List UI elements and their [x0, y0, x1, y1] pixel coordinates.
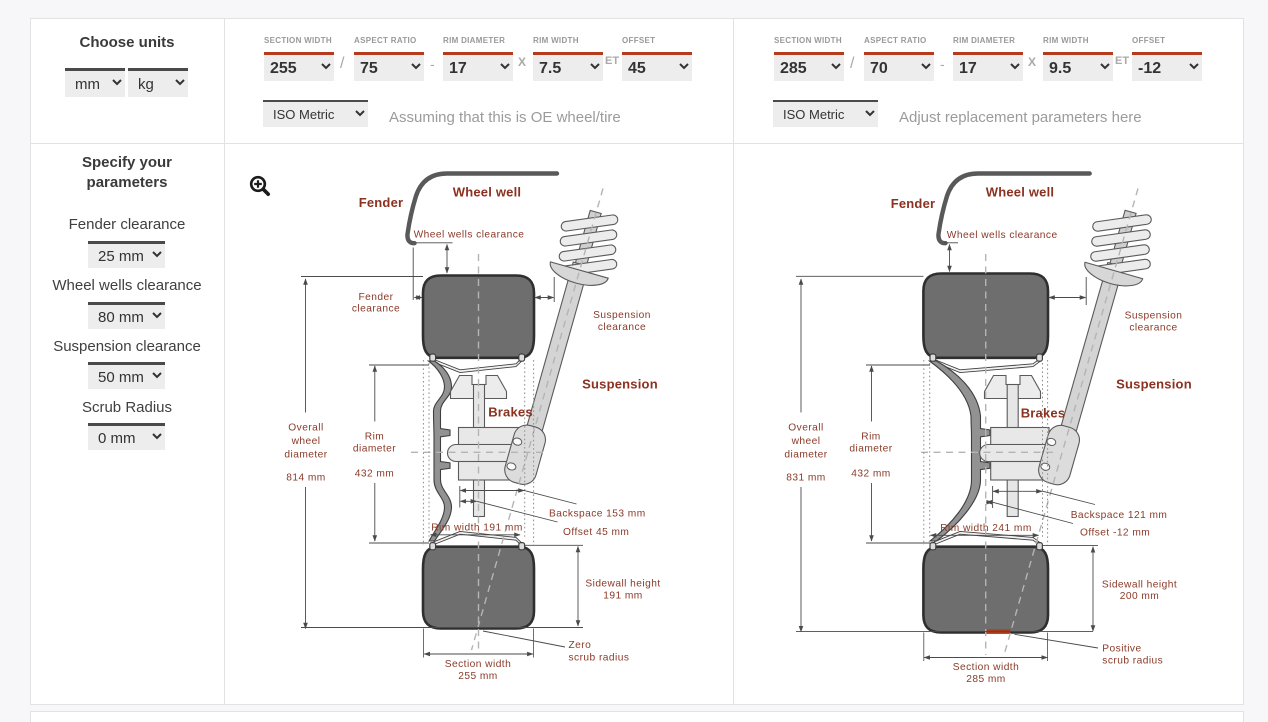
svg-text:Brakes: Brakes	[1021, 406, 1066, 421]
svg-text:Wheel wells clearance: Wheel wells clearance	[947, 230, 1058, 241]
svg-text:Rim: Rim	[861, 432, 880, 443]
svg-text:Fender: Fender	[359, 195, 404, 210]
svg-text:Fender: Fender	[359, 292, 394, 303]
svg-text:Sidewall height: Sidewall height	[585, 579, 660, 590]
svg-text:Offset 45 mm: Offset 45 mm	[563, 527, 629, 538]
svg-text:Wheel wells clearance: Wheel wells clearance	[414, 230, 525, 241]
svg-text:285 mm: 285 mm	[966, 674, 1006, 685]
svg-text:diameter: diameter	[353, 444, 396, 455]
svg-text:wheel: wheel	[791, 436, 821, 447]
svg-text:Rim width 191 mm: Rim width 191 mm	[431, 523, 523, 534]
svg-text:wheel: wheel	[291, 436, 321, 447]
svg-text:191 mm: 191 mm	[603, 591, 643, 602]
svg-text:Overall: Overall	[288, 423, 323, 434]
svg-text:814 mm: 814 mm	[286, 473, 326, 484]
svg-text:Offset -12 mm: Offset -12 mm	[1080, 528, 1150, 539]
svg-text:255 mm: 255 mm	[458, 671, 498, 682]
svg-text:Suspension: Suspension	[582, 377, 658, 392]
svg-text:Positive: Positive	[1102, 644, 1141, 655]
svg-text:432 mm: 432 mm	[851, 469, 891, 480]
svg-text:Section width: Section width	[953, 662, 1019, 673]
svg-text:Brakes: Brakes	[488, 405, 533, 420]
svg-text:clearance: clearance	[598, 322, 646, 333]
svg-text:clearance: clearance	[352, 304, 400, 315]
svg-text:200 mm: 200 mm	[1120, 591, 1160, 602]
svg-text:diameter: diameter	[784, 450, 827, 461]
svg-text:Section width: Section width	[445, 659, 511, 670]
svg-text:Wheel well: Wheel well	[453, 185, 521, 200]
svg-text:diameter: diameter	[284, 450, 327, 461]
svg-text:scrub radius: scrub radius	[1102, 656, 1163, 667]
svg-text:Rim width 241 mm: Rim width 241 mm	[940, 523, 1032, 534]
svg-text:432 mm: 432 mm	[355, 469, 395, 480]
svg-text:Suspension: Suspension	[1116, 377, 1192, 392]
svg-text:Sidewall height: Sidewall height	[1102, 580, 1177, 591]
svg-text:Suspension: Suspension	[1125, 311, 1183, 322]
svg-text:Backspace 153 mm: Backspace 153 mm	[549, 509, 646, 520]
svg-text:Backspace 121 mm: Backspace 121 mm	[1071, 510, 1168, 521]
svg-text:Wheel well: Wheel well	[986, 185, 1054, 200]
svg-text:Rim: Rim	[365, 432, 384, 443]
svg-text:831 mm: 831 mm	[786, 473, 826, 484]
svg-text:Suspension: Suspension	[593, 310, 651, 321]
svg-text:clearance: clearance	[1129, 323, 1177, 334]
svg-text:Fender: Fender	[891, 196, 936, 211]
svg-text:diameter: diameter	[849, 444, 892, 455]
svg-text:scrub radius: scrub radius	[569, 653, 630, 664]
svg-text:Overall: Overall	[788, 423, 823, 434]
svg-text:Zero: Zero	[569, 640, 592, 651]
